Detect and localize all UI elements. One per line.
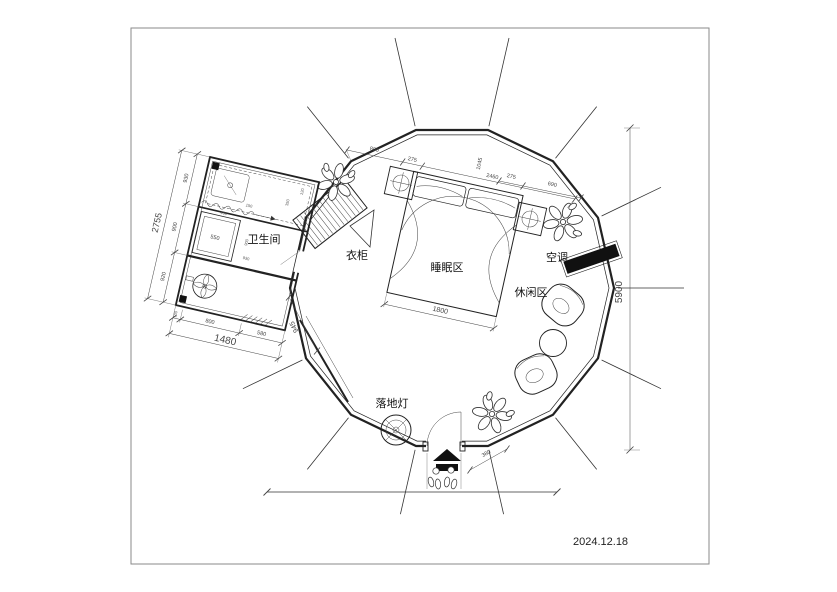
floor-plan-canvas: 1800 (0, 0, 837, 592)
label-bathroom: 卫生间 (248, 232, 281, 246)
label-leisure-area: 休闲区 (515, 285, 548, 299)
label-floor-lamp: 落地灯 (376, 397, 409, 410)
label-wardrobe: 衣柜 (346, 248, 368, 262)
floor-plan-page: 1800 (0, 0, 837, 592)
label-sleeping-area: 睡眠区 (431, 261, 464, 274)
drawing-date: 2024.12.18 (573, 536, 628, 548)
label-air-conditioner: 空调 (546, 250, 568, 264)
dim-height-5900: 5900 (614, 280, 625, 303)
